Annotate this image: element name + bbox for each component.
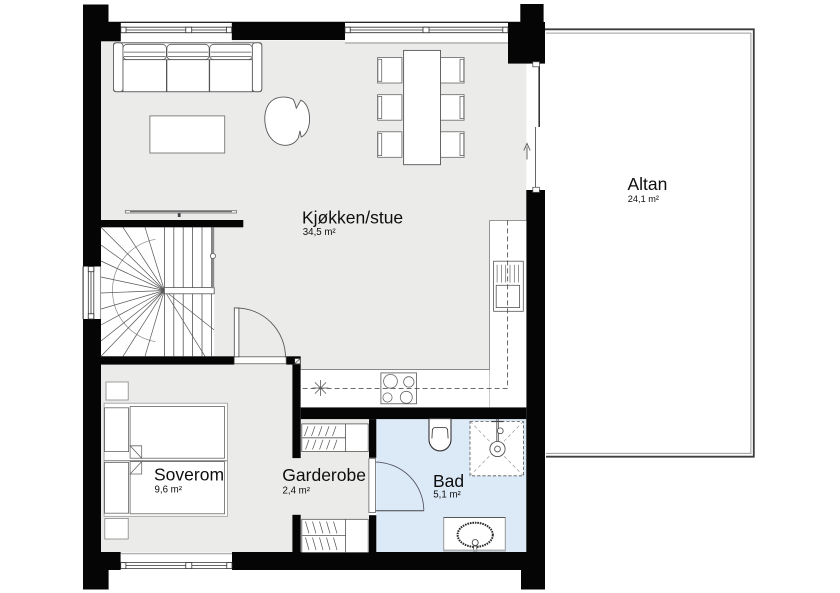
svg-text:5,1 m²: 5,1 m² — [433, 489, 461, 500]
svg-text:34,5 m²: 34,5 m² — [303, 227, 337, 238]
svg-text:24,1 m²: 24,1 m² — [628, 194, 659, 204]
svg-text:Garderobe: Garderobe — [282, 465, 366, 485]
svg-text:Kjøkken/stue: Kjøkken/stue — [302, 208, 403, 228]
svg-text:9,6 m²: 9,6 m² — [155, 484, 183, 495]
svg-text:2,4 m²: 2,4 m² — [283, 486, 311, 497]
svg-text:Soverom: Soverom — [154, 465, 224, 485]
svg-text:Bad: Bad — [433, 471, 464, 491]
svg-text:Altan: Altan — [628, 174, 668, 194]
